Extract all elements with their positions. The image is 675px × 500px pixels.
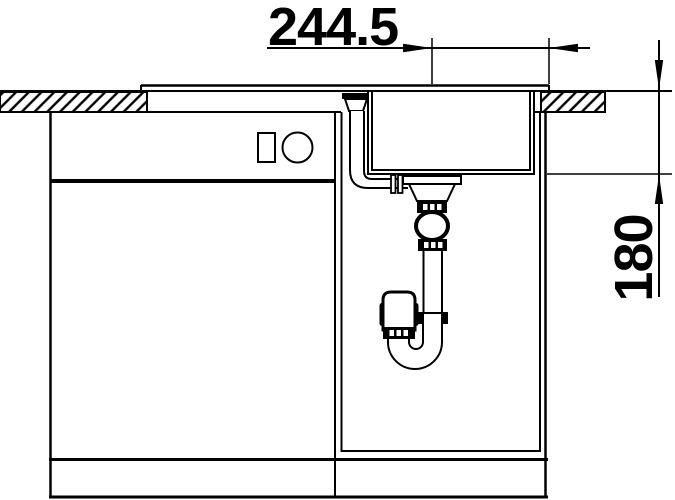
sink-installation-diagram: 244.5 180 bbox=[0, 0, 675, 500]
outlet-union-rib-right bbox=[414, 303, 419, 326]
worktop-hatch-right bbox=[541, 92, 605, 112]
worktop bbox=[0, 91, 672, 112]
dimension-vertical-label: 180 bbox=[604, 214, 664, 301]
trap-cup bbox=[416, 212, 448, 240]
overflow-collar-a bbox=[391, 175, 396, 193]
cabinet bbox=[49, 93, 548, 498]
overflow-pipe-inner-wall bbox=[364, 111, 408, 179]
dimension-vertical-arrow-up bbox=[655, 175, 663, 204]
drain-flange-top bbox=[403, 173, 461, 177]
front-panel-knob bbox=[283, 133, 313, 163]
overflow-fitting-body bbox=[345, 99, 367, 111]
drain-taper bbox=[409, 184, 455, 201]
dimension-horizontal-label: 244.5 bbox=[268, 0, 398, 57]
dimension-horizontal-arrow-right bbox=[549, 44, 578, 52]
sink bbox=[141, 85, 549, 174]
front-panel-display bbox=[258, 133, 275, 162]
worktop-hatch-left bbox=[0, 92, 147, 112]
sink-bowl-outer bbox=[368, 92, 534, 174]
dimension-vertical-arrow-down bbox=[655, 60, 663, 89]
overflow-collar-b bbox=[398, 175, 403, 193]
dimension-vertical: 180 bbox=[547, 40, 672, 302]
dimension-horizontal: 244.5 bbox=[267, 0, 590, 84]
union-nut-4 bbox=[383, 327, 415, 339]
tailpipe bbox=[424, 250, 443, 314]
dimension-horizontal-arrow-left bbox=[403, 44, 432, 52]
outlet-union-cup bbox=[383, 292, 415, 330]
sink-bowl-inner bbox=[372, 92, 530, 170]
outlet-union-rib-left bbox=[380, 303, 385, 326]
technical-drawing-canvas: 244.5 180 bbox=[0, 0, 675, 500]
drain-plumbing bbox=[350, 111, 461, 369]
